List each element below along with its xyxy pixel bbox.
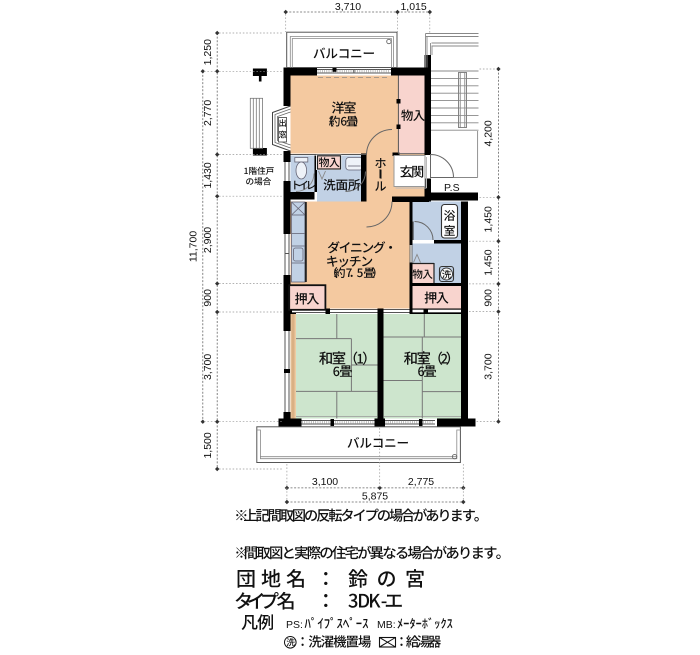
svg-text:4,200: 4,200: [483, 120, 495, 146]
svg-text:1,450: 1,450: [483, 206, 495, 232]
svg-text:1,500: 1,500: [202, 432, 214, 458]
svg-text:2,775: 2,775: [408, 476, 434, 488]
svg-text:1,430: 1,430: [202, 162, 214, 188]
svg-text:2,770: 2,770: [202, 100, 214, 126]
svg-text:1,015: 1,015: [400, 1, 426, 13]
svg-text:3,700: 3,700: [202, 354, 214, 380]
svg-text:3,100: 3,100: [312, 476, 338, 488]
svg-text:3,700: 3,700: [483, 353, 495, 379]
svg-text:MB:: MB:: [377, 619, 396, 631]
svg-text:11,700: 11,700: [188, 231, 200, 262]
svg-text:5,875: 5,875: [362, 491, 388, 503]
svg-text:1,250: 1,250: [202, 39, 214, 65]
svg-text:P.S: P.S: [444, 182, 460, 194]
svg-text:1,450: 1,450: [483, 249, 495, 275]
svg-text:2,900: 2,900: [202, 227, 214, 253]
svg-text:900: 900: [483, 289, 495, 307]
svg-text:900: 900: [202, 289, 214, 307]
svg-text:3,710: 3,710: [335, 1, 361, 13]
svg-text:PS:: PS:: [286, 619, 303, 631]
